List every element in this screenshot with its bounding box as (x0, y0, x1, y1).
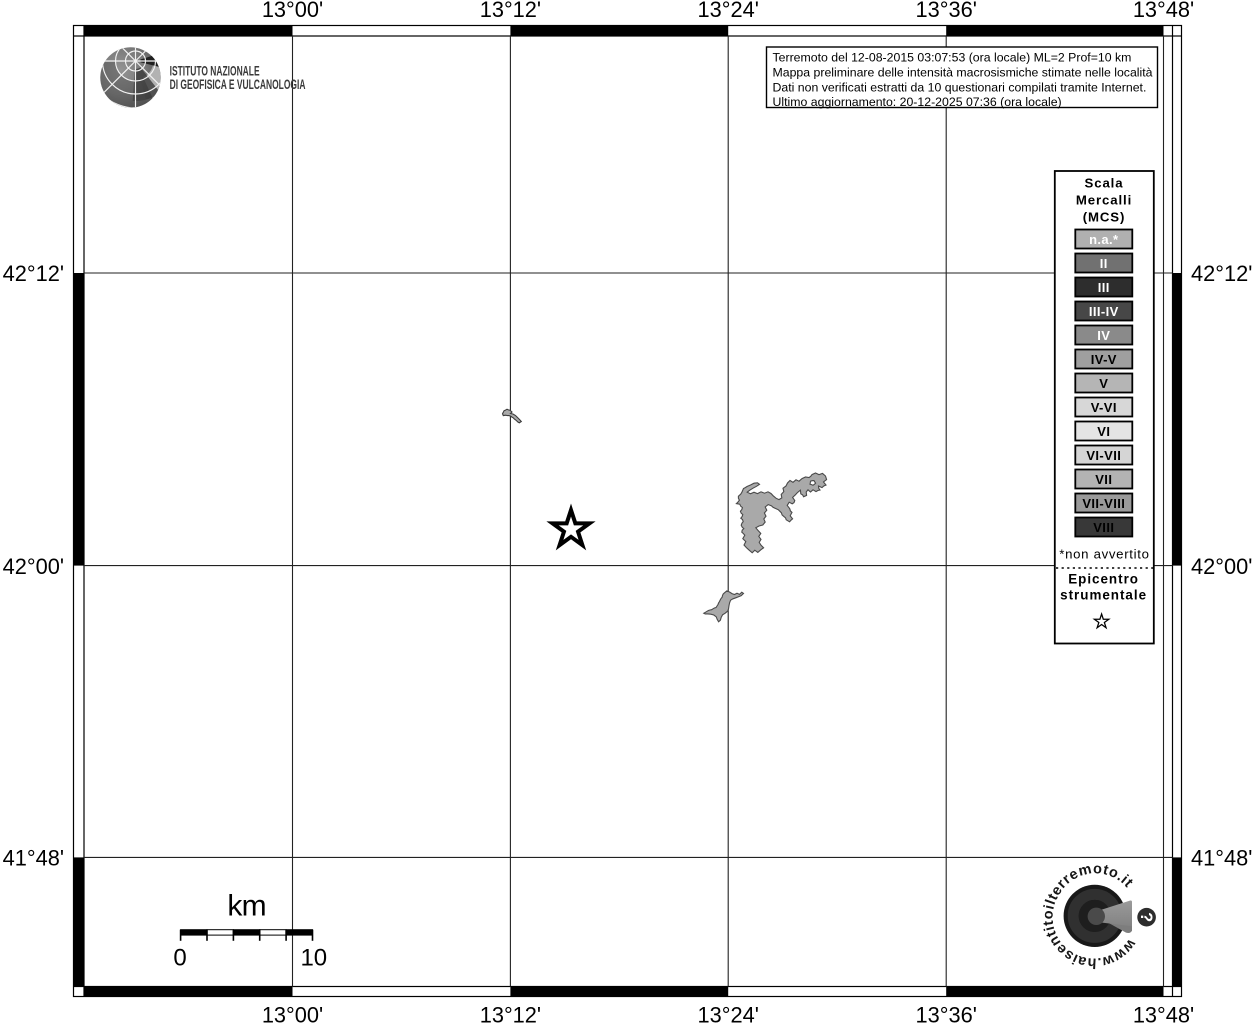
svg-text:13°48': 13°48' (1133, 0, 1194, 22)
svg-text:III-IV: III-IV (1089, 304, 1119, 319)
svg-text:13°00': 13°00' (262, 1003, 323, 1025)
svg-text:42°00': 42°00' (3, 554, 64, 579)
svg-text:VII-VIII: VII-VIII (1082, 496, 1125, 511)
svg-text:41°48': 41°48' (3, 846, 64, 871)
svg-text:n.a.*: n.a.* (1089, 232, 1119, 247)
svg-text:VII: VII (1095, 472, 1112, 487)
svg-text:V: V (1099, 376, 1108, 391)
svg-text:V-VI: V-VI (1091, 400, 1117, 415)
svg-text:Terremoto del 12-08-2015 03:07: Terremoto del 12-08-2015 03:07:53 (ora l… (773, 51, 1132, 65)
svg-text:41°48': 41°48' (1191, 846, 1252, 871)
svg-text:13°36': 13°36' (916, 1003, 977, 1025)
svg-text:IV: IV (1097, 328, 1110, 343)
svg-text:10: 10 (300, 945, 327, 972)
svg-text:DI GEOFISICA E VULCANOLOGIA: DI GEOFISICA E VULCANOLOGIA (170, 77, 306, 93)
svg-text:13°48': 13°48' (1133, 1003, 1194, 1025)
svg-text:Ultimo aggiornamento: 20-12-20: Ultimo aggiornamento: 20-12-2025 07:36 (… (773, 95, 1062, 109)
svg-text:13°24': 13°24' (698, 1003, 759, 1025)
svg-text:km: km (227, 889, 265, 922)
svg-text:?: ? (1137, 912, 1155, 922)
svg-text:0: 0 (173, 945, 186, 972)
svg-text:VI: VI (1097, 424, 1110, 439)
svg-text:Scala: Scala (1085, 176, 1124, 191)
svg-text:Mappa preliminare delle intens: Mappa preliminare delle intensità macros… (773, 66, 1153, 80)
svg-text:42°12': 42°12' (3, 261, 64, 286)
svg-text:strumentale: strumentale (1060, 588, 1147, 603)
svg-text:VI-VII: VI-VII (1086, 448, 1121, 463)
svg-text:Mercalli: Mercalli (1076, 193, 1132, 208)
svg-text:*non avvertito: *non avvertito (1059, 547, 1149, 562)
svg-text:Epicentro: Epicentro (1068, 572, 1139, 587)
svg-text:(MCS): (MCS) (1083, 210, 1126, 225)
svg-text:13°36': 13°36' (916, 0, 977, 22)
svg-text:13°24': 13°24' (698, 0, 759, 22)
svg-text:IV-V: IV-V (1091, 352, 1117, 367)
svg-text:VIII: VIII (1093, 520, 1114, 535)
svg-text:Dati non verificati estratti d: Dati non verificati estratti da 10 quest… (773, 81, 1147, 95)
svg-text:13°12': 13°12' (480, 0, 541, 22)
svg-text:13°00': 13°00' (262, 0, 323, 22)
svg-text:III: III (1098, 280, 1110, 295)
svg-text:42°00': 42°00' (1191, 554, 1252, 579)
svg-text:42°12': 42°12' (1191, 261, 1252, 286)
svg-text:II: II (1100, 256, 1108, 271)
svg-text:13°12': 13°12' (480, 1003, 541, 1025)
